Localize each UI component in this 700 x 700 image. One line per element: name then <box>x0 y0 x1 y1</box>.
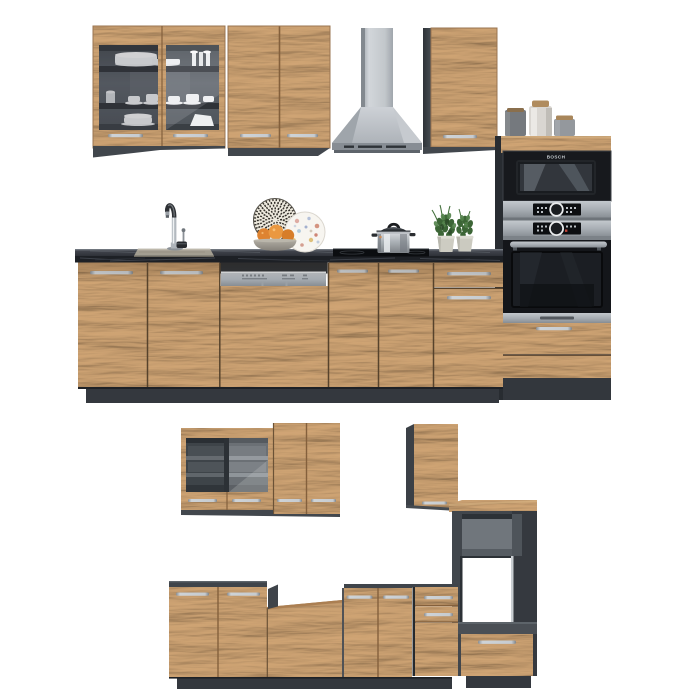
svg-text:BOSCH: BOSCH <box>547 155 566 160</box>
